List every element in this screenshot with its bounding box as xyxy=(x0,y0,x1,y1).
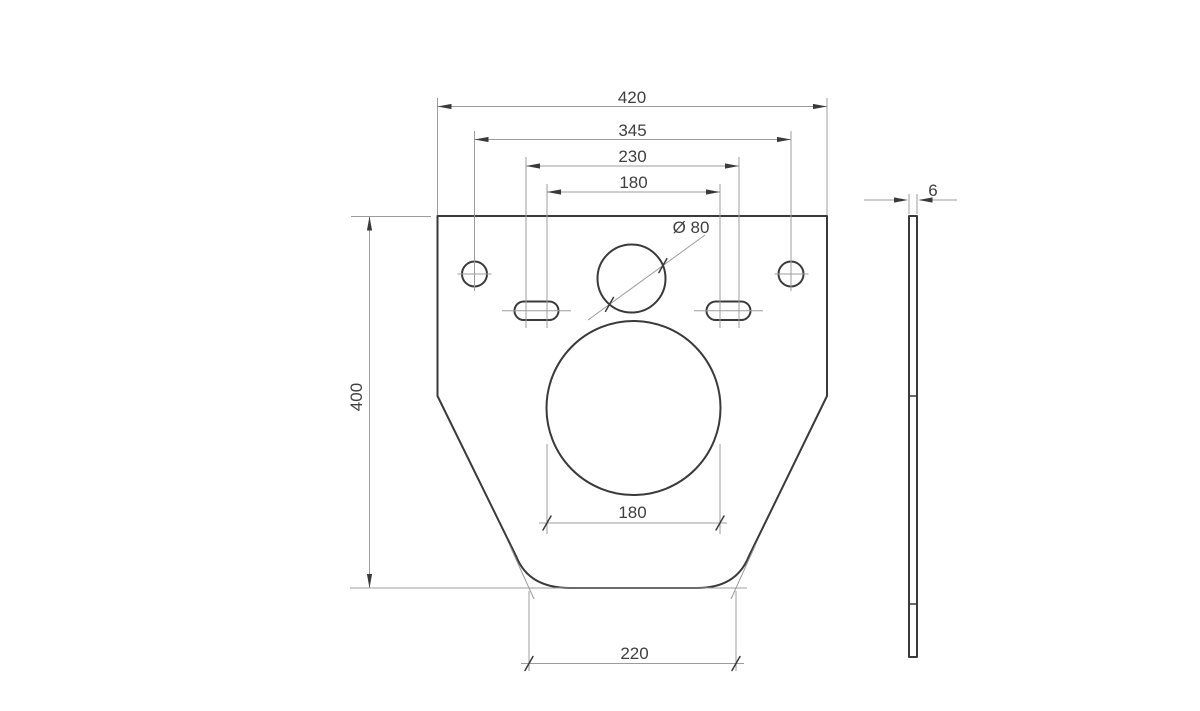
dimension-label: 230 xyxy=(618,147,646,166)
dimension-6: 6 xyxy=(864,181,957,214)
arrowhead xyxy=(777,137,791,142)
drawing-canvas: 420 345 230 180 400 Ø 80 1 xyxy=(0,0,1200,706)
dimension-label: 6 xyxy=(928,181,937,200)
dimension-label: Ø 80 xyxy=(673,218,710,237)
arrowhead xyxy=(475,137,489,142)
side-view: 6 xyxy=(864,181,957,657)
dimension-label: 400 xyxy=(347,383,366,411)
arrowhead xyxy=(547,189,561,194)
dimension-diameter-80: Ø 80 xyxy=(588,218,709,320)
dimension-label: 345 xyxy=(618,121,646,140)
technical-drawing: 420 345 230 180 400 Ø 80 1 xyxy=(0,0,1200,706)
dimension-label: 180 xyxy=(619,173,647,192)
arrowhead xyxy=(367,574,372,588)
edge-extension-slant-right xyxy=(731,545,756,599)
arrowhead xyxy=(813,104,827,109)
dimension-230: 230 xyxy=(526,147,739,169)
arrowhead xyxy=(367,217,372,231)
oblique-tick xyxy=(606,297,614,311)
arrowhead xyxy=(894,197,908,202)
dimension-420: 420 xyxy=(438,88,828,109)
dimension-180-top: 180 xyxy=(547,173,720,195)
dimension-220: 220 xyxy=(521,644,744,671)
dimension-180-bottom: 180 xyxy=(539,503,727,530)
arrowhead xyxy=(438,104,452,109)
dimension-400: 400 xyxy=(347,217,372,589)
edge-extension-slant-left xyxy=(510,545,535,599)
arrowhead xyxy=(725,163,739,168)
dimension-label: 420 xyxy=(618,88,646,107)
plate-side-profile xyxy=(909,216,917,657)
dimension-label: 180 xyxy=(618,503,646,522)
dimension-345: 345 xyxy=(475,121,792,142)
pipe-hole-circle xyxy=(598,245,666,313)
arrowhead xyxy=(526,163,540,168)
arrowhead xyxy=(706,189,720,194)
dimension-label: 220 xyxy=(620,644,648,663)
large-opening-circle xyxy=(547,321,721,495)
extension-and-center-lines xyxy=(350,98,827,671)
front-view xyxy=(438,216,828,588)
plate-outline xyxy=(438,216,828,588)
